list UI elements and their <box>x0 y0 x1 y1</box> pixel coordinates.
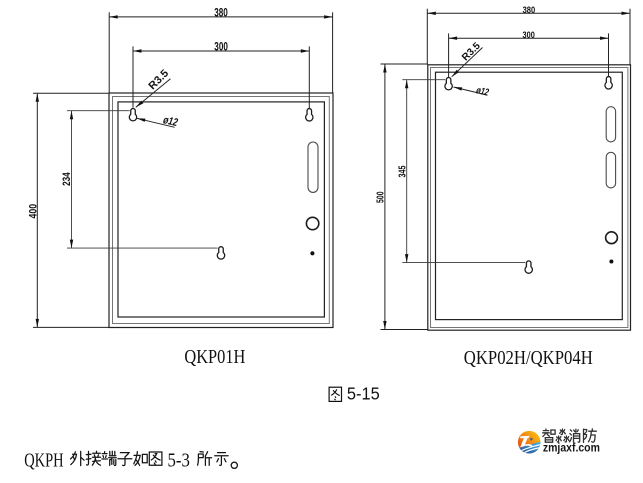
svg-text:300: 300 <box>523 30 535 40</box>
svg-text:5-15: 5-15 <box>347 384 380 404</box>
svg-text:QKPH: QKPH <box>24 451 63 472</box>
svg-text:500: 500 <box>374 191 386 203</box>
svg-text:380: 380 <box>523 5 536 15</box>
svg-text:QKP01H: QKP01H <box>184 346 245 368</box>
svg-text:400: 400 <box>28 204 40 219</box>
svg-text:380: 380 <box>214 6 228 20</box>
svg-text:300: 300 <box>214 39 228 53</box>
svg-text:5-3: 5-3 <box>168 451 190 472</box>
svg-text:345: 345 <box>397 165 409 177</box>
svg-text:234: 234 <box>61 172 73 186</box>
svg-text:QKP02H/QKP04H: QKP02H/QKP04H <box>464 347 593 369</box>
svg-text:zmjaxf.com: zmjaxf.com <box>543 443 600 455</box>
